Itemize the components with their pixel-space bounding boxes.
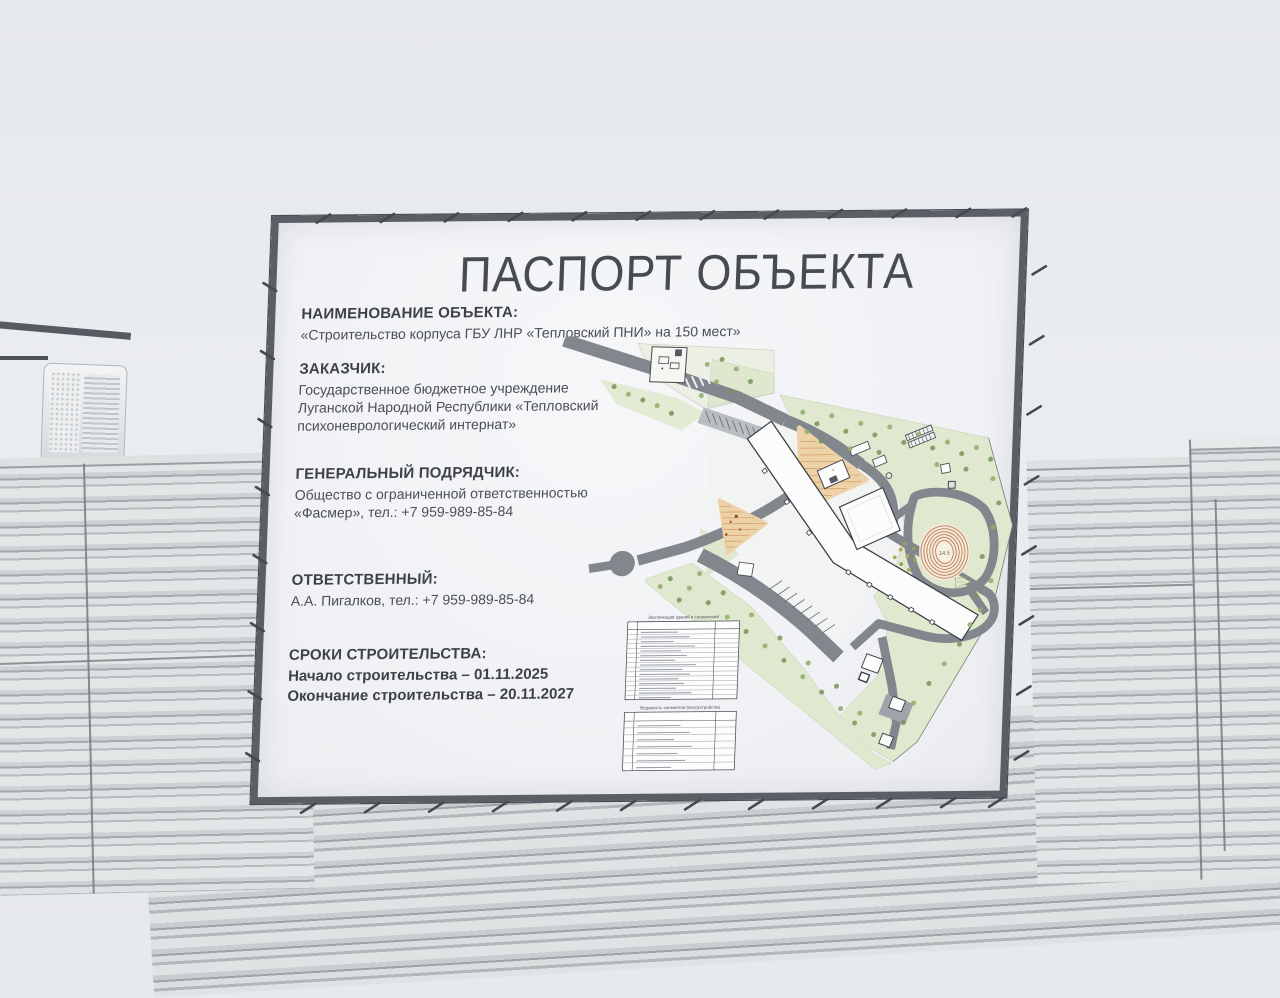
photo-of-construction-fence: { "photo": { "board": { "title": "ПАСПОР… <box>0 0 1280 868</box>
legend-table-title: Ведомость элементов благоустройства <box>640 705 720 711</box>
fence-panel <box>1027 464 1203 884</box>
site-plan: 14.5 <box>546 332 1025 798</box>
board-title: ПАСПОРТ ОБЪЕКТА <box>421 241 952 304</box>
fence-panel-joint <box>0 655 254 666</box>
fence-panel <box>1189 437 1280 880</box>
legend-table-buildings: Экспликация зданий и сооружений <box>625 614 740 700</box>
fence-panel-seam <box>1215 499 1226 851</box>
boiler-plot-building <box>650 347 687 383</box>
air-conditioner-unit <box>40 363 127 465</box>
legend-table-title: Экспликация зданий и сооружений <box>648 614 720 620</box>
fence-panel-seam <box>83 464 95 894</box>
fence-right-section <box>1026 437 1280 884</box>
ac-grille <box>82 374 121 453</box>
cabin-ledge <box>0 356 48 360</box>
legend-table-landscaping: Ведомость элементов благоустройства <box>622 704 736 770</box>
banner-canvas: ПАСПОРТ ОБЪЕКТА НАИМЕНОВАНИЕ ОБЪЕКТА: «С… <box>250 209 1028 804</box>
fence-panel-joint <box>1030 584 1195 590</box>
stadium-label: 14.5 <box>939 551 951 557</box>
section-heading: НАИМЕНОВАНИЕ ОБЪЕКТА: <box>301 302 752 323</box>
ac-perforated-panel <box>49 372 82 453</box>
passport-board: ПАСПОРТ ОБЪЕКТА НАИМЕНОВАНИЕ ОБЪЕКТА: «С… <box>250 209 1028 804</box>
